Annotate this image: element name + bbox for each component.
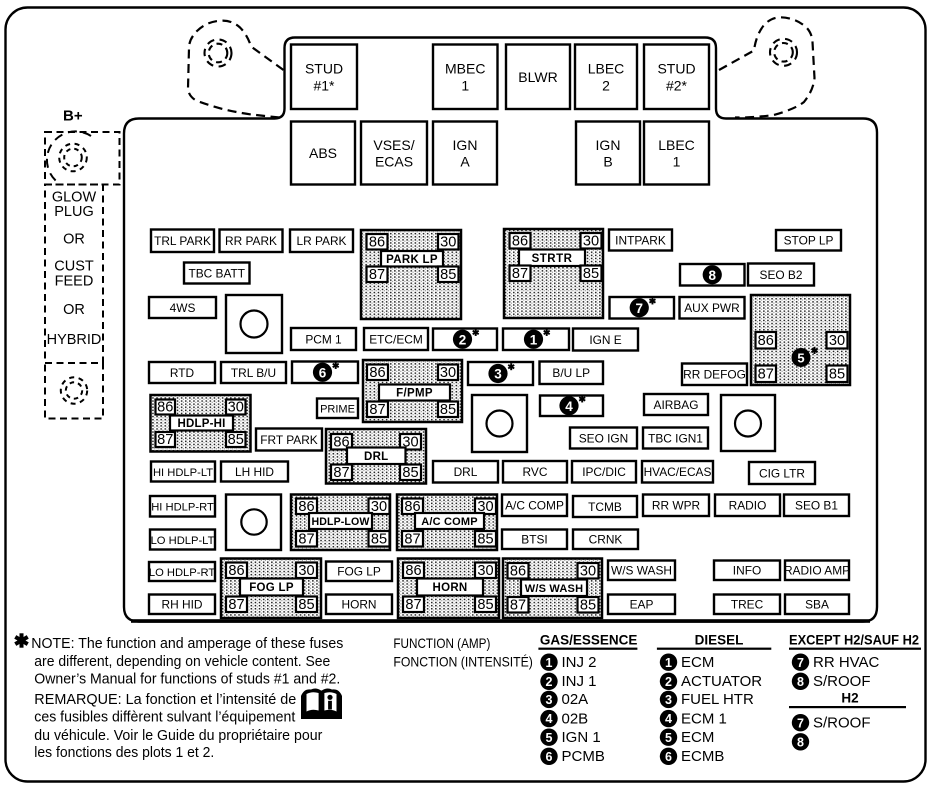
svg-text:HDLP-HI: HDLP-HI (177, 418, 225, 430)
svg-text:EAP: EAP (630, 598, 654, 612)
svg-text:A/C COMP: A/C COMP (421, 516, 478, 528)
svg-text:FOG LP: FOG LP (249, 582, 294, 594)
svg-text:W/S WASH: W/S WASH (525, 583, 583, 595)
svg-text:STRTR: STRTR (532, 253, 573, 265)
svg-text:S/ROOF: S/ROOF (813, 673, 871, 690)
svg-text:SEO B2: SEO B2 (760, 268, 803, 282)
svg-text:HI HDLP-LT: HI HDLP-LT (153, 467, 213, 479)
svg-text:DRL: DRL (364, 451, 389, 463)
svg-text:2: 2 (459, 332, 467, 347)
svg-text:RADIO: RADIO (729, 499, 767, 513)
svg-text:IGN 1: IGN 1 (562, 729, 601, 746)
svg-text:8: 8 (797, 735, 804, 749)
svg-text:LBEC: LBEC (588, 61, 625, 77)
svg-text:STUD: STUD (657, 61, 695, 77)
svg-text:RR DEFOG: RR DEFOG (683, 368, 746, 382)
svg-text:2: 2 (602, 77, 610, 93)
svg-text:VSES/: VSES/ (373, 137, 414, 153)
svg-text:FRT PARK: FRT PARK (260, 433, 318, 447)
svg-text:LBEC: LBEC (658, 137, 695, 153)
svg-text:GAS/ESSENCE: GAS/ESSENCE (540, 633, 638, 648)
svg-text:86: 86 (369, 234, 385, 250)
svg-text:A/C COMP: A/C COMP (505, 499, 564, 513)
svg-text:ECM 1: ECM 1 (681, 710, 727, 727)
svg-text:85: 85 (580, 597, 596, 613)
svg-text:INJ 2: INJ 2 (562, 654, 597, 671)
svg-text:85: 85 (440, 267, 456, 283)
svg-text:4: 4 (565, 399, 573, 414)
svg-text:87: 87 (404, 531, 420, 547)
svg-text:85: 85 (440, 402, 456, 418)
svg-text:85: 85 (371, 531, 387, 547)
svg-text:86: 86 (157, 400, 173, 416)
svg-text:87: 87 (405, 597, 421, 613)
svg-text:#2*: #2* (666, 77, 688, 93)
svg-text:FEED: FEED (55, 274, 94, 290)
svg-text:IGN: IGN (453, 137, 478, 153)
svg-text:IGN: IGN (596, 137, 621, 153)
svg-text:SBA: SBA (805, 598, 829, 612)
svg-text:OR: OR (63, 231, 85, 247)
svg-text:30: 30 (298, 563, 314, 579)
svg-text:Owner’s Manual for functions o: Owner’s Manual for functions of studs #1… (34, 671, 340, 688)
svg-text:ECAS: ECAS (375, 154, 413, 170)
svg-text:30: 30 (477, 563, 493, 579)
svg-text:85: 85 (228, 432, 244, 448)
svg-text:1: 1 (530, 332, 538, 347)
svg-text:FONCTION (INTENSITÉ): FONCTION (INTENSITÉ) (393, 653, 533, 669)
svg-text:TRL PARK: TRL PARK (154, 234, 211, 248)
svg-text:2: 2 (546, 675, 553, 689)
svg-text:30: 30 (583, 233, 599, 249)
svg-text:6: 6 (319, 365, 327, 380)
svg-text:TREC: TREC (731, 598, 764, 612)
svg-text:86: 86 (510, 563, 526, 579)
svg-text:87: 87 (369, 267, 385, 283)
svg-text:5: 5 (546, 731, 553, 745)
svg-text:PCM 1: PCM 1 (305, 332, 342, 346)
svg-text:7: 7 (797, 656, 804, 670)
svg-text:86: 86 (228, 563, 244, 579)
svg-text:30: 30 (580, 563, 596, 579)
svg-text:ECM: ECM (681, 654, 714, 671)
svg-text:STUD: STUD (305, 61, 343, 77)
svg-text:RVC: RVC (523, 465, 548, 479)
svg-text:7: 7 (797, 716, 804, 730)
svg-text:PCMB: PCMB (562, 748, 605, 765)
svg-text:IPC/DIC: IPC/DIC (582, 465, 626, 479)
svg-text:85: 85 (477, 597, 493, 613)
svg-text:86: 86 (512, 233, 528, 249)
svg-text:3: 3 (494, 367, 502, 382)
svg-text:8: 8 (797, 675, 804, 689)
svg-text:STOP LP: STOP LP (784, 234, 834, 248)
svg-text:ABS: ABS (309, 145, 337, 161)
svg-text:3: 3 (546, 693, 553, 707)
svg-text:CRNK: CRNK (589, 533, 623, 547)
svg-text:OR: OR (63, 302, 85, 318)
svg-text:TRL B/U: TRL B/U (231, 366, 276, 380)
svg-text:F/PMP: F/PMP (396, 388, 433, 400)
svg-text:30: 30 (371, 499, 387, 515)
svg-text:87: 87 (758, 366, 774, 382)
svg-text:ETC/ECM: ETC/ECM (369, 332, 423, 346)
svg-text:87: 87 (510, 597, 526, 613)
svg-text:SEO B1: SEO B1 (795, 499, 838, 513)
svg-text:FOG LP: FOG LP (337, 565, 381, 579)
svg-text:4: 4 (665, 712, 672, 726)
svg-text:FUEL HTR: FUEL HTR (681, 691, 754, 708)
svg-text:85: 85 (402, 465, 418, 481)
svg-text:INFO: INFO (733, 564, 761, 578)
svg-text:02B: 02B (562, 710, 589, 727)
svg-text:B: B (603, 154, 612, 170)
svg-text:CIG LTR: CIG LTR (759, 466, 805, 480)
svg-text:LH HID: LH HID (235, 465, 274, 479)
svg-text:ACTUATOR: ACTUATOR (681, 673, 762, 690)
svg-text:85: 85 (477, 531, 493, 547)
svg-text:3: 3 (665, 693, 672, 707)
svg-text:30: 30 (440, 365, 456, 381)
svg-text:87: 87 (369, 402, 385, 418)
svg-text:du véhicule. Voir le Guide du: du véhicule. Voir le Guide du propriétai… (34, 727, 322, 744)
svg-text:87: 87 (298, 531, 314, 547)
svg-text:1: 1 (665, 656, 672, 670)
svg-text:87: 87 (228, 597, 244, 613)
svg-text:87: 87 (512, 266, 528, 282)
svg-text:8: 8 (708, 268, 716, 283)
svg-text:ECM: ECM (681, 729, 714, 746)
svg-text:REMARQUE: La fonction et l’int: REMARQUE: La fonction et l’intensité de (34, 691, 296, 708)
svg-text:5: 5 (665, 731, 672, 745)
svg-text:2: 2 (665, 675, 672, 689)
svg-text:86: 86 (758, 333, 774, 349)
svg-text:LO HDLP-LT: LO HDLP-LT (151, 535, 215, 547)
svg-text:SEO IGN: SEO IGN (579, 431, 629, 445)
svg-text:RADIO AMP: RADIO AMP (784, 564, 850, 578)
svg-text:PRIME: PRIME (320, 404, 355, 416)
svg-text:ces fusibles diffèrent sulvant: ces fusibles diffèrent sulvant l’équipem… (34, 709, 296, 726)
svg-text:INJ 1: INJ 1 (562, 673, 597, 690)
svg-text:S/ROOF: S/ROOF (813, 715, 871, 732)
svg-text:30: 30 (440, 234, 456, 250)
svg-text:HYBRID: HYBRID (47, 332, 102, 348)
svg-text:TBC BATT: TBC BATT (188, 266, 245, 280)
svg-text:EXCEPT H2/SAUF H2: EXCEPT H2/SAUF H2 (789, 633, 919, 648)
svg-text:A: A (460, 154, 470, 170)
svg-text:1: 1 (673, 154, 681, 170)
svg-text:02A: 02A (562, 691, 589, 708)
svg-text:86: 86 (369, 365, 385, 381)
svg-text:7: 7 (635, 301, 643, 316)
svg-text:W/S WASH: W/S WASH (611, 564, 672, 578)
svg-text:BLWR: BLWR (518, 69, 557, 85)
svg-text:H2: H2 (841, 691, 858, 706)
svg-text:HI HDLP-RT: HI HDLP-RT (151, 502, 214, 514)
svg-text:NOTE: The function and amperag: NOTE: The function and amperage of these… (31, 635, 343, 652)
svg-text:87: 87 (333, 465, 349, 481)
svg-text:MBEC: MBEC (445, 61, 485, 77)
svg-text:DRL: DRL (454, 465, 478, 479)
svg-text:CUST: CUST (54, 259, 94, 275)
svg-text:PLUG: PLUG (54, 204, 94, 220)
svg-text:BTSI: BTSI (521, 533, 547, 547)
svg-text:PARK LP: PARK LP (386, 254, 438, 266)
svg-text:INTPARK: INTPARK (615, 233, 666, 247)
svg-text:6: 6 (546, 750, 553, 764)
svg-text:ECMB: ECMB (681, 748, 724, 765)
svg-text:87: 87 (157, 432, 173, 448)
svg-text:RR WPR: RR WPR (652, 499, 701, 513)
svg-text:86: 86 (405, 563, 421, 579)
svg-text:TBC IGN1: TBC IGN1 (648, 431, 703, 445)
svg-text:HORN: HORN (341, 598, 376, 612)
svg-text:IGN E: IGN E (589, 333, 621, 347)
svg-text:les fonctions des plots 1 et 2: les fonctions des plots 1 et 2. (34, 744, 214, 761)
svg-text:FUNCTION (AMP): FUNCTION (AMP) (393, 635, 490, 651)
svg-text:#1*: #1* (313, 77, 335, 93)
svg-text:DIESEL: DIESEL (695, 633, 744, 648)
svg-text:B+: B+ (63, 108, 83, 125)
svg-text:TCMB: TCMB (588, 500, 622, 514)
svg-text:HVAC/ECAS: HVAC/ECAS (644, 465, 712, 479)
svg-text:85: 85 (829, 366, 845, 382)
svg-text:4: 4 (546, 712, 553, 726)
svg-text:1: 1 (461, 77, 469, 93)
svg-text:6: 6 (665, 750, 672, 764)
svg-text:B/U LP: B/U LP (552, 366, 590, 380)
svg-text:5: 5 (797, 350, 804, 365)
svg-text:RH HID: RH HID (162, 598, 203, 612)
svg-text:85: 85 (298, 597, 314, 613)
svg-text:are different, depending on ve: are different, depending on vehicle cont… (34, 653, 330, 670)
svg-text:RR HVAC: RR HVAC (813, 654, 880, 671)
svg-text:1: 1 (546, 656, 553, 670)
svg-text:LO HDLP-RT: LO HDLP-RT (149, 567, 215, 579)
svg-text:RTD: RTD (170, 366, 195, 380)
svg-text:AIRBAG: AIRBAG (654, 398, 699, 412)
svg-text:AUX PWR: AUX PWR (684, 301, 740, 315)
svg-text:30: 30 (228, 400, 244, 416)
svg-text:HDLP-LOW: HDLP-LOW (312, 516, 370, 528)
svg-text:HORN: HORN (432, 582, 467, 594)
svg-text:RR PARK: RR PARK (225, 234, 277, 248)
svg-text:4WS: 4WS (170, 301, 196, 315)
svg-text:LR PARK: LR PARK (296, 234, 346, 248)
svg-text:85: 85 (583, 266, 599, 282)
svg-text:30: 30 (829, 333, 845, 349)
